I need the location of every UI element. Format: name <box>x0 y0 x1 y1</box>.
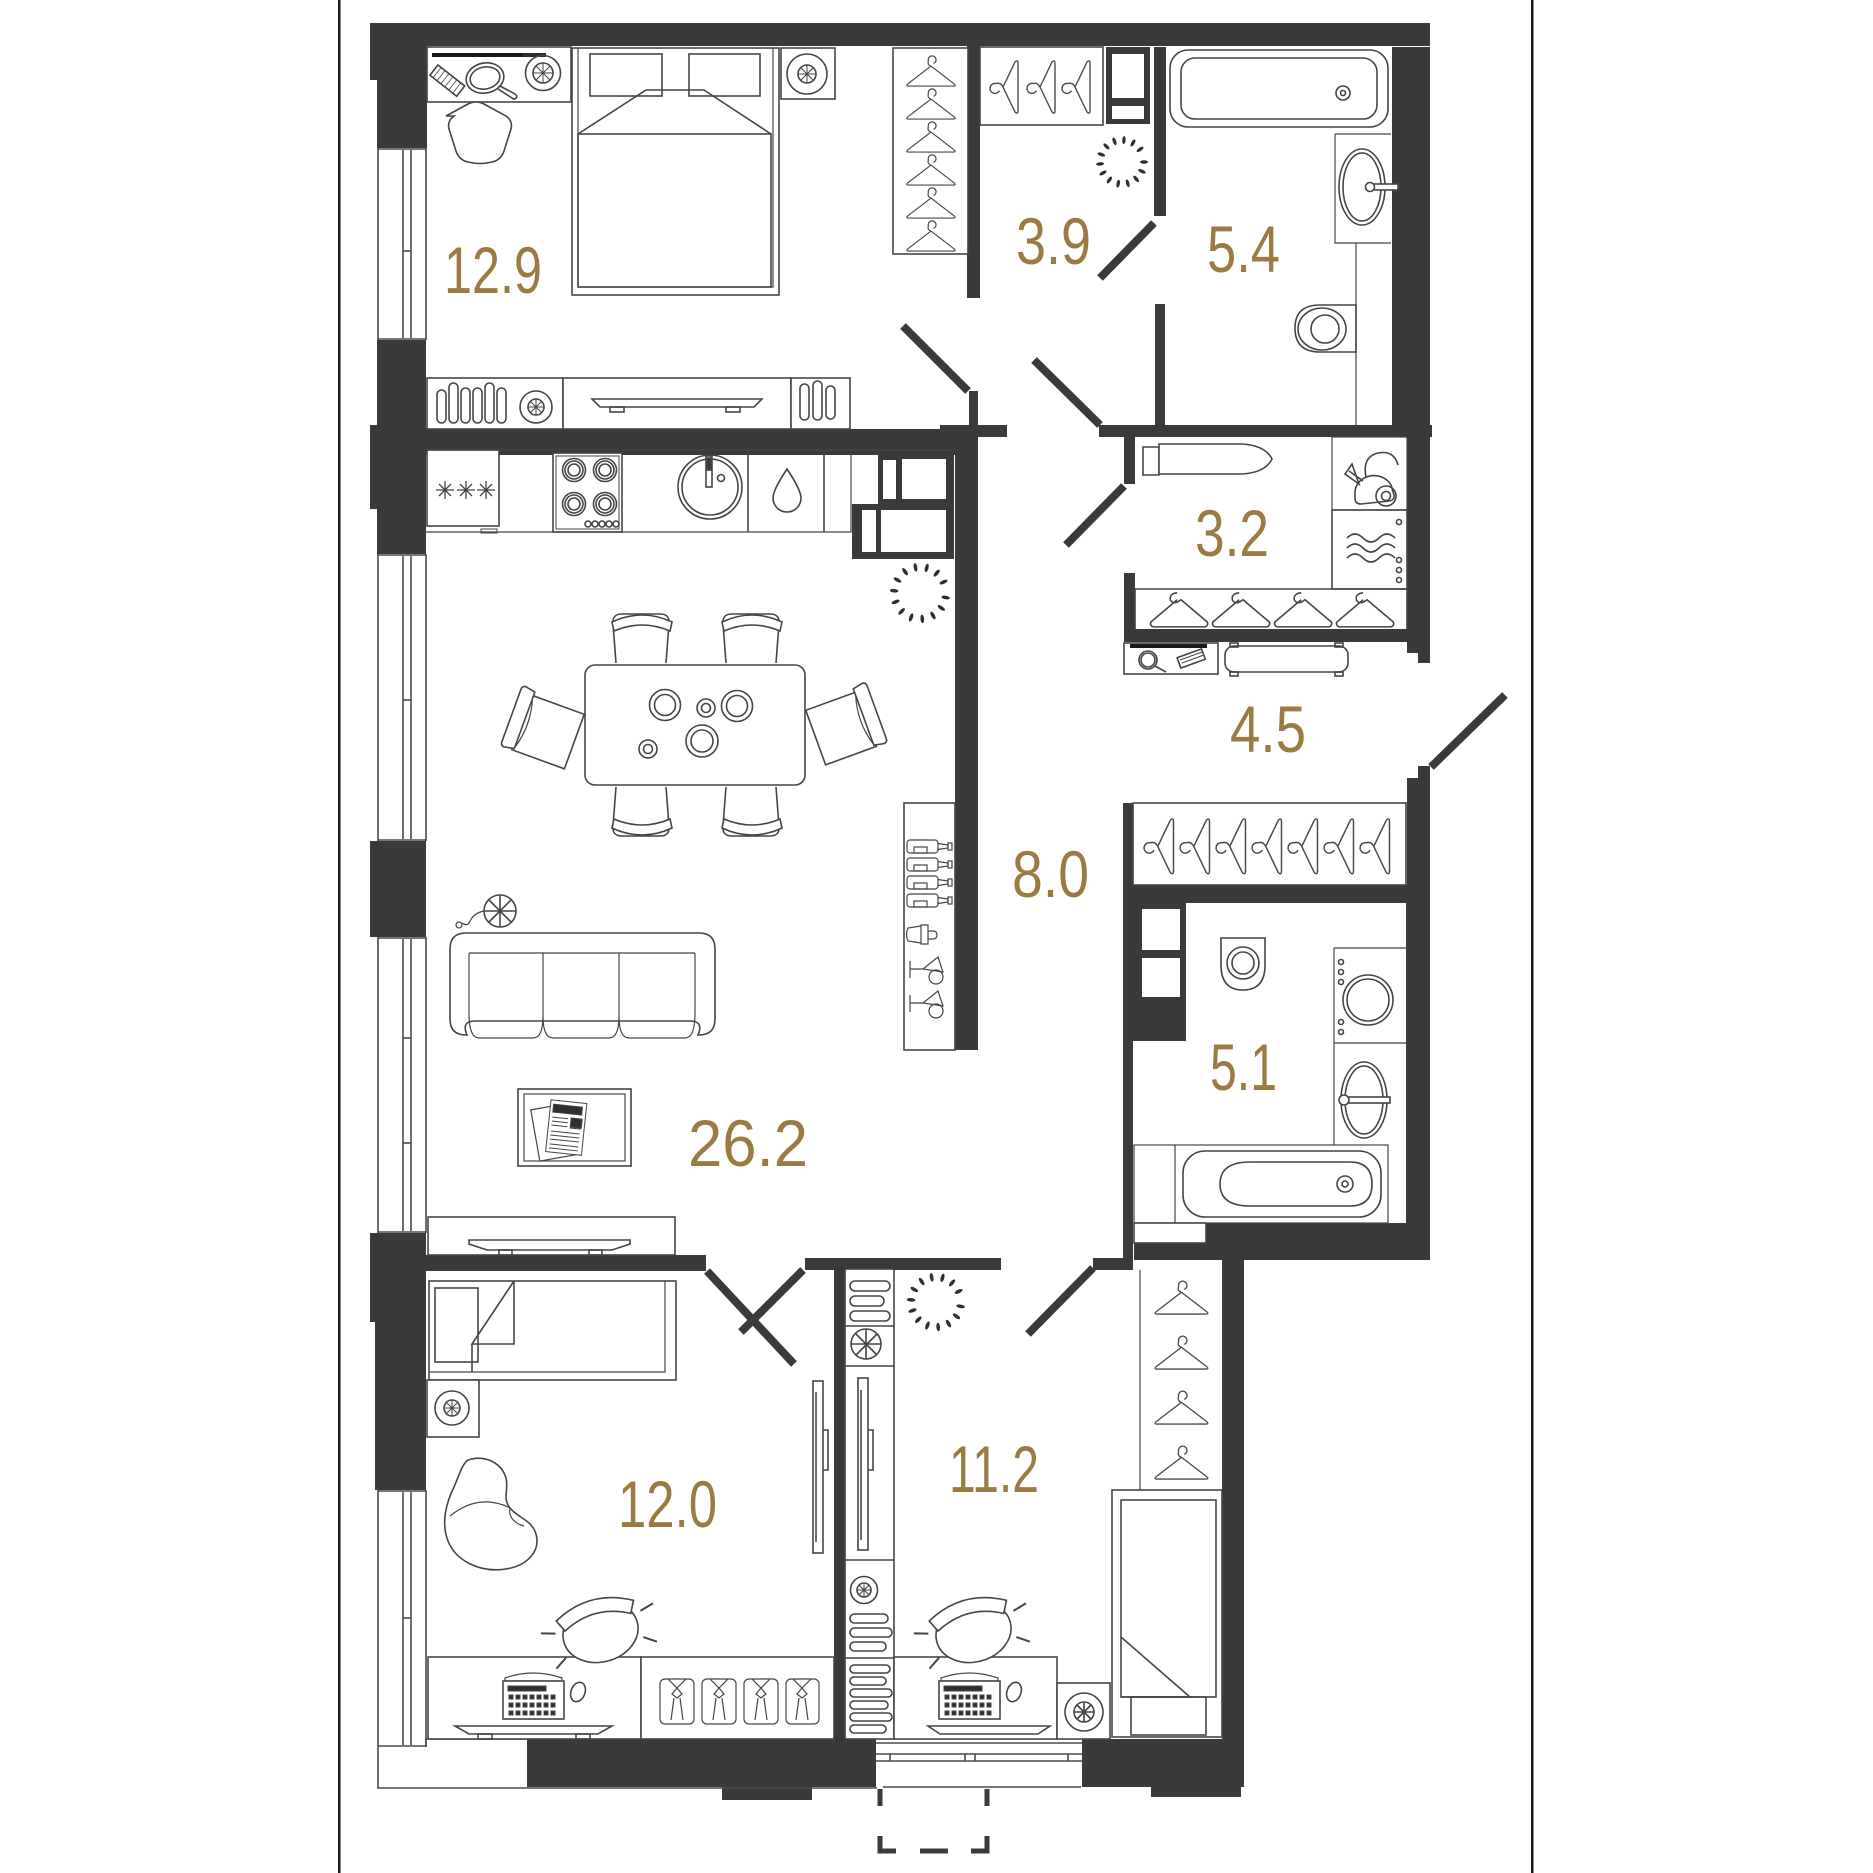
svg-text:12.9: 12.9 <box>444 233 542 307</box>
svg-text:3.2: 3.2 <box>1195 496 1269 570</box>
svg-text:5.1: 5.1 <box>1210 1030 1277 1104</box>
svg-text:5.4: 5.4 <box>1207 212 1280 286</box>
svg-text:12.0: 12.0 <box>618 1467 717 1541</box>
svg-text:3.9: 3.9 <box>1016 204 1091 278</box>
svg-text:26.2: 26.2 <box>688 1106 808 1180</box>
svg-text:8.0: 8.0 <box>1012 837 1089 911</box>
svg-text:4.5: 4.5 <box>1230 692 1306 766</box>
svg-text:11.2: 11.2 <box>949 1432 1039 1506</box>
